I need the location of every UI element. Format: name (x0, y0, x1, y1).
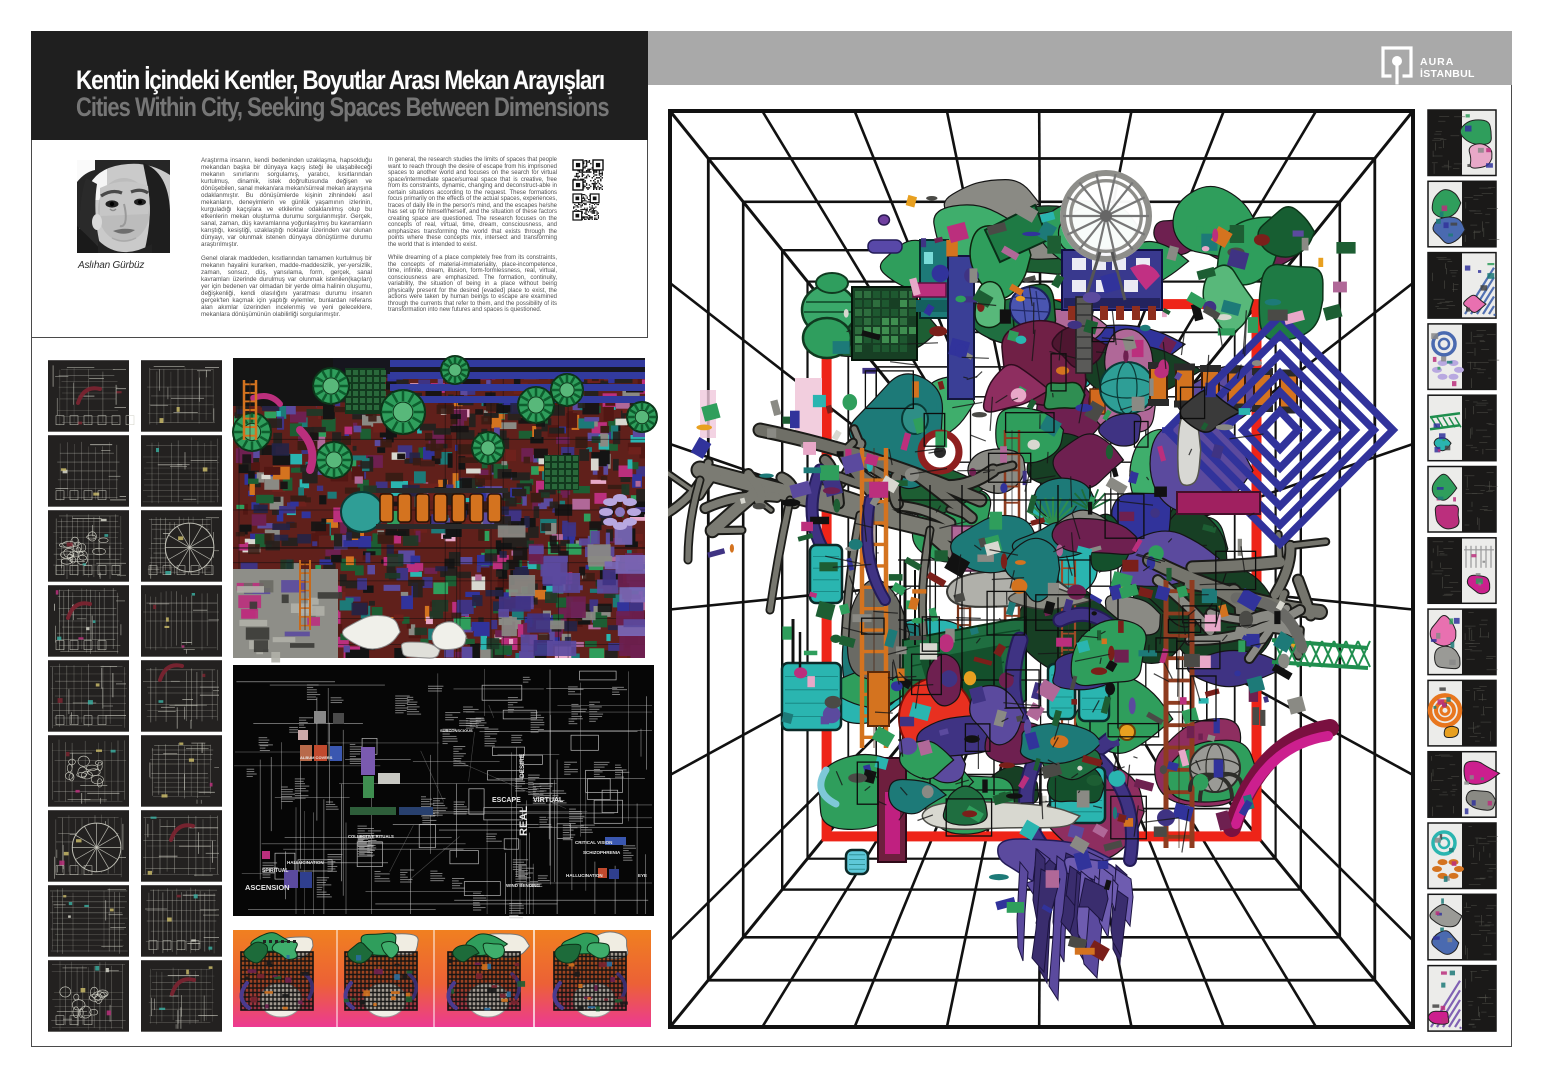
svg-text:CRITICAL VISION: CRITICAL VISION (575, 840, 612, 845)
svg-text:SUBCONSCIOUS: SUBCONSCIOUS (440, 728, 473, 733)
svg-text:DESIRE: DESIRE (519, 753, 526, 778)
svg-text:SPIRITUAL: SPIRITUAL (262, 868, 288, 874)
svg-text:COLLECTIVE RITUALS: COLLECTIVE RITUALS (348, 834, 394, 839)
svg-text:EYE: EYE (638, 873, 647, 878)
svg-text:REAL: REAL (518, 806, 530, 836)
svg-text:AURA: AURA (1420, 56, 1454, 68)
svg-text:VIRTUAL: VIRTUAL (533, 797, 564, 804)
svg-text:İSTANBUL: İSTANBUL (1420, 67, 1475, 80)
svg-text:WIND BENDING: WIND BENDING (506, 883, 540, 888)
svg-text:SCHIZOPHRENIA: SCHIZOPHRENIA (583, 850, 621, 855)
svg-text:ESCAPE: ESCAPE (492, 797, 521, 804)
svg-text:HALLUCINATION: HALLUCINATION (566, 873, 603, 878)
svg-text:ALBUM COVERS: ALBUM COVERS (300, 755, 333, 760)
svg-text:ASCENSION: ASCENSION (245, 883, 290, 892)
svg-text:HALLUCINATION: HALLUCINATION (287, 860, 324, 865)
